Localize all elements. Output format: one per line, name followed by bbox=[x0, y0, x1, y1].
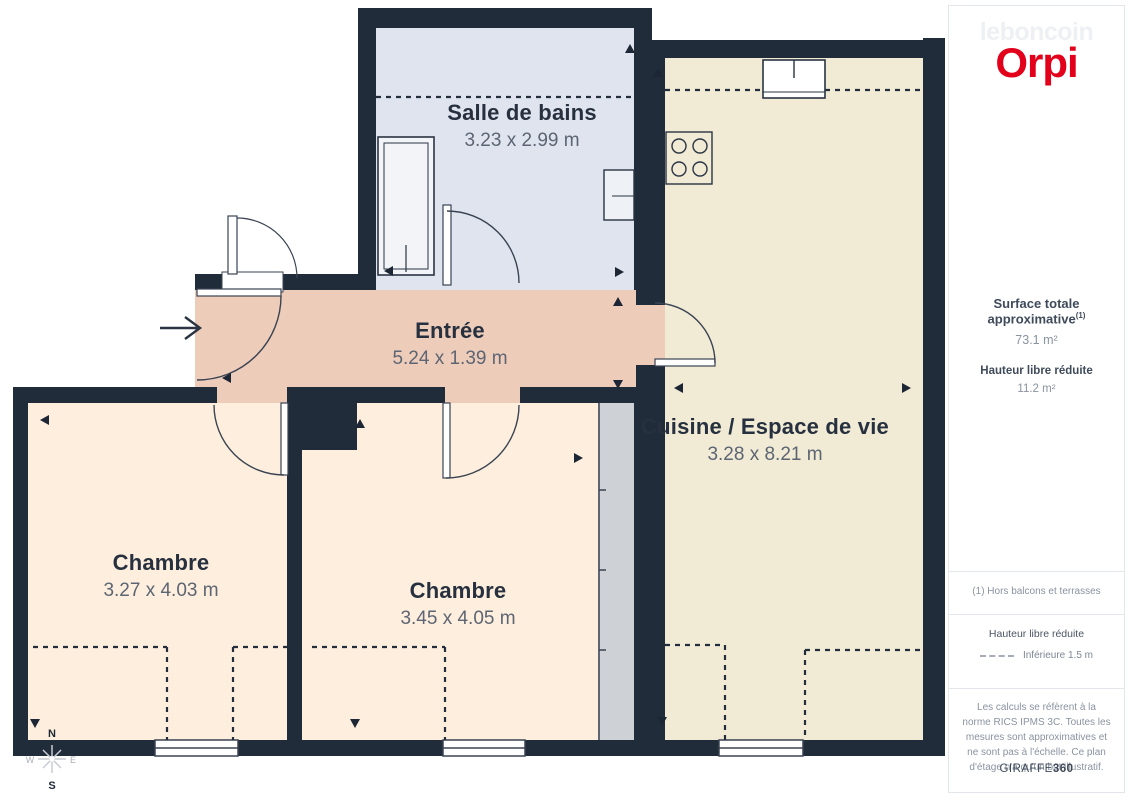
room-fills bbox=[28, 28, 923, 740]
closet-floor bbox=[598, 403, 634, 740]
floorplan-page: N S W E Salle de bains 3.23 x 2.99 m Ent… bbox=[0, 0, 1130, 800]
outside-door-arc bbox=[237, 218, 297, 278]
info-sidebar: leboncoin Orpi Surface totale approximat… bbox=[948, 5, 1125, 793]
credit-bold: 360 bbox=[1053, 763, 1074, 775]
divider bbox=[949, 571, 1124, 572]
reduced-height-value: 11.2 m² bbox=[949, 383, 1124, 395]
bedroom2-door-leaf bbox=[443, 403, 450, 478]
surface-footnote-ref: (1) bbox=[1076, 311, 1086, 320]
bathroom-sink bbox=[604, 170, 634, 220]
compass-e: E bbox=[70, 755, 76, 765]
compass-n: N bbox=[48, 728, 56, 740]
legend-title: Hauteur libre réduite bbox=[949, 628, 1124, 640]
compass-s: S bbox=[48, 780, 55, 792]
entree-floor bbox=[195, 290, 636, 387]
legend-value: Inférieure 1.5 m bbox=[1023, 650, 1093, 661]
reduced-height-label: Hauteur libre réduite bbox=[949, 365, 1124, 377]
orpi-logo: Orpi bbox=[949, 39, 1124, 87]
outside-door-leaf bbox=[228, 216, 237, 274]
giraffe360-credit: GIRAFFE360 bbox=[949, 763, 1124, 775]
surface-label-text: Surface totale approximative bbox=[988, 296, 1080, 326]
divider bbox=[949, 614, 1124, 615]
divider bbox=[949, 688, 1124, 689]
dashed-line-sample bbox=[980, 655, 1014, 657]
kitchen-floor bbox=[665, 58, 923, 740]
surface-block: Surface totale approximative(1) 73.1 m² … bbox=[949, 296, 1124, 395]
kitchen-door-leaf bbox=[655, 359, 715, 366]
bedroom1-floor bbox=[28, 403, 287, 740]
surface-label: Surface totale approximative(1) bbox=[949, 296, 1124, 326]
footnote: (1) Hors balcons et terrasses bbox=[949, 586, 1124, 597]
front-door-leaf bbox=[197, 289, 281, 296]
logo-block: leboncoin Orpi bbox=[949, 6, 1124, 87]
reduced-height-legend: Hauteur libre réduite Inférieure 1.5 m bbox=[949, 628, 1124, 661]
compass-w: W bbox=[26, 755, 35, 765]
bedroom1-door-leaf bbox=[281, 403, 288, 475]
surface-value: 73.1 m² bbox=[949, 333, 1124, 347]
credit-normal: GIRAFFE bbox=[999, 763, 1052, 775]
bathroom-door-leaf bbox=[443, 205, 451, 285]
entry-arrow-icon bbox=[160, 317, 200, 339]
